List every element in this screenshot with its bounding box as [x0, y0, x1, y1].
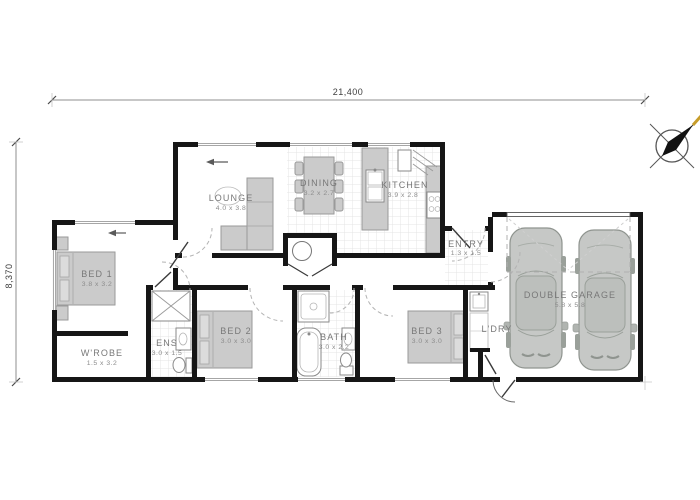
ldry-label: L'DRY — [481, 324, 512, 334]
hot-water-cupboard — [288, 238, 332, 266]
floor-plan-drawing: LOUNGE 4.0 x 3.8 DINING 3.2 x 2.7 KITCHE… — [0, 0, 700, 500]
bed2-label: BED 2 — [220, 326, 252, 336]
fridge — [398, 150, 411, 171]
lounge-door-leaf — [170, 242, 188, 268]
wrobe-size: 1.5 x 3.2 — [87, 360, 118, 367]
overall-depth-dimension: 8,370 — [4, 263, 14, 288]
kitchen-size: 3.9 x 2.8 — [388, 192, 419, 199]
garage-label: DOUBLE GARAGE — [524, 290, 616, 300]
overall-width-dimension: 21,400 — [333, 87, 364, 97]
direction-arrow-left-icon — [206, 159, 214, 165]
bath-size: 3.0 x 2.2 — [319, 344, 350, 351]
bath-label: BATH — [320, 332, 348, 342]
garage-size: 5.8 x 5.8 — [555, 302, 586, 309]
ens-door-leaf — [155, 272, 171, 287]
ens-label: ENS — [156, 338, 178, 348]
dining-label: DINING — [300, 178, 338, 188]
car-right — [573, 230, 637, 370]
bed3-size: 3.0 x 3.0 — [412, 338, 443, 345]
sofa — [221, 178, 273, 250]
kitchen-label: KITCHEN — [381, 180, 428, 190]
bed3-furniture — [408, 311, 464, 363]
bed3-door-arc — [365, 288, 393, 316]
laundry-door-leaf — [485, 355, 496, 374]
wrobe-label: W'ROBE — [81, 348, 123, 358]
garage-door — [507, 213, 630, 217]
entry-size: 1.3 x 1.5 — [451, 250, 482, 257]
garage-exterior-door-leaf — [502, 380, 515, 397]
bed1-size: 3.8 x 3.2 — [82, 281, 113, 288]
bed2-size: 3.0 x 3.0 — [221, 338, 252, 345]
lounge-size: 4.0 x 3.8 — [216, 205, 247, 212]
entry-label: ENTRY — [448, 239, 484, 249]
bed2-door-arc — [250, 288, 283, 321]
ens-size: 3.0 x 1.5 — [152, 350, 183, 357]
north-compass-icon — [650, 116, 700, 168]
bed1-label: BED 1 — [81, 269, 113, 279]
dimension-width: 21,400 — [48, 87, 649, 107]
lounge-label: LOUNGE — [209, 193, 254, 203]
laundry-fixtures — [470, 292, 488, 351]
floor-plan-page: LOUNGE 4.0 x 3.8 DINING 3.2 x 2.7 KITCHE… — [0, 0, 700, 500]
dining-size: 3.2 x 2.7 — [304, 190, 335, 197]
direction-arrow-left-icon — [108, 230, 116, 236]
bed3-label: BED 3 — [411, 326, 443, 336]
